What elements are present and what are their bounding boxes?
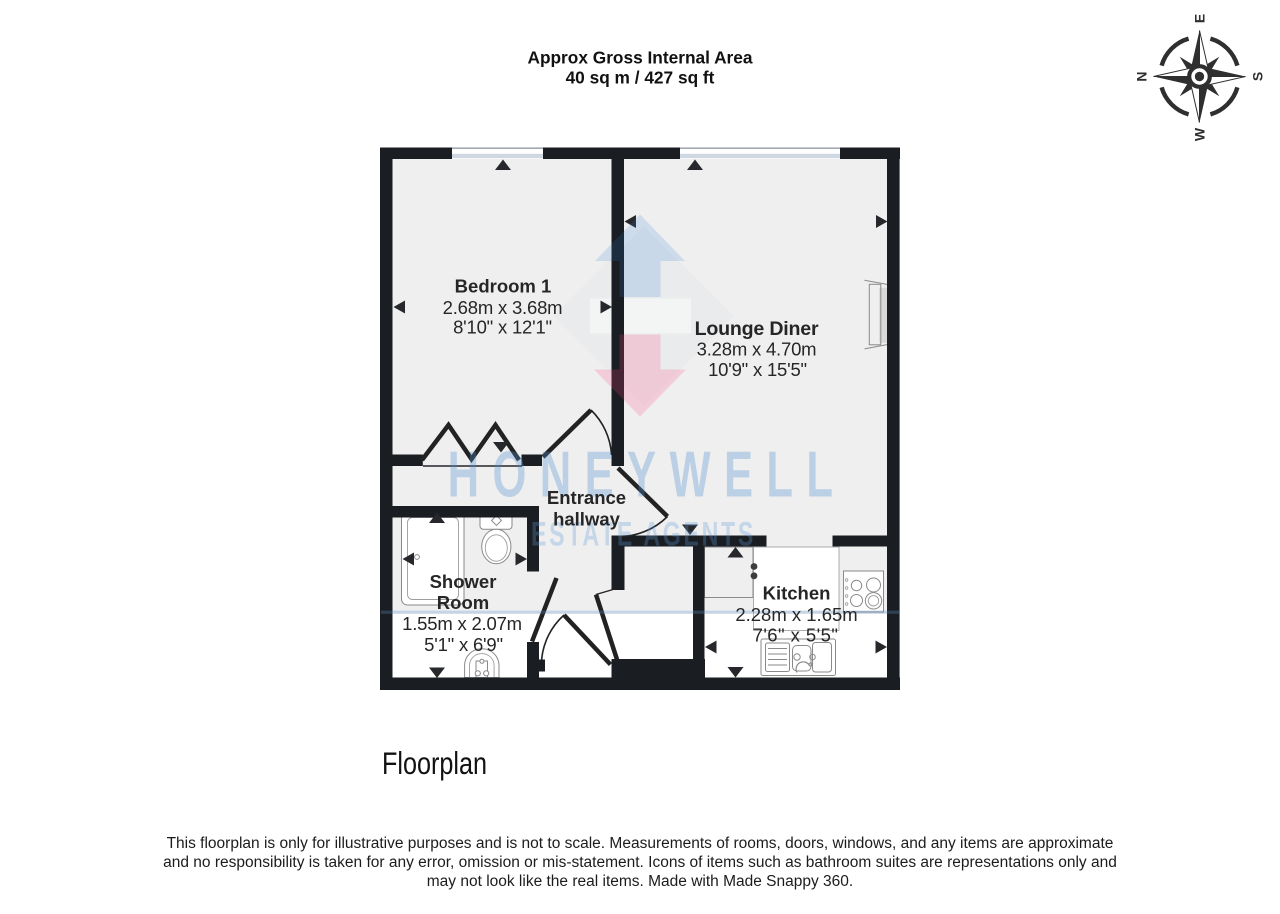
svg-text:E: E — [1192, 14, 1208, 23]
svg-text:W: W — [1192, 127, 1208, 141]
svg-text:Lounge Diner: Lounge Diner — [695, 318, 819, 340]
svg-text:may not look like the real ite: may not look like the real items. Made w… — [427, 873, 853, 890]
svg-text:Entrance: Entrance — [547, 487, 626, 508]
svg-text:Approx Gross Internal Area: Approx Gross Internal Area — [527, 48, 752, 68]
svg-text:1.55m x 2.07m: 1.55m x 2.07m — [402, 613, 522, 634]
svg-text:Room: Room — [437, 592, 489, 613]
svg-text:40 sq m / 427 sq ft: 40 sq m / 427 sq ft — [566, 68, 715, 88]
svg-text:Floorplan: Floorplan — [382, 746, 487, 781]
svg-text:10'9" x 15'5": 10'9" x 15'5" — [708, 359, 807, 380]
svg-text:S: S — [1250, 72, 1266, 81]
svg-text:8'10" x 12'1": 8'10" x 12'1" — [453, 316, 552, 337]
svg-text:Bedroom 1: Bedroom 1 — [455, 275, 552, 296]
svg-text:7'6" x 5'5": 7'6" x 5'5" — [753, 624, 839, 645]
svg-text:2.68m x 3.68m: 2.68m x 3.68m — [443, 297, 563, 318]
svg-text:5'1" x 6'9": 5'1" x 6'9" — [424, 634, 503, 655]
svg-text:This floorplan is only for ill: This floorplan is only for illustrative … — [167, 835, 1114, 852]
svg-text:3.28m x 4.70m: 3.28m x 4.70m — [697, 339, 817, 360]
svg-text:hallway: hallway — [553, 509, 621, 530]
svg-text:2.28m x 1.65m: 2.28m x 1.65m — [735, 604, 857, 625]
svg-text:Shower: Shower — [430, 571, 497, 592]
svg-text:N: N — [1134, 71, 1150, 81]
svg-text:HONEYWELL: HONEYWELL — [448, 438, 847, 511]
svg-text:Kitchen: Kitchen — [763, 583, 831, 604]
svg-text:and no responsibility is taken: and no responsibility is taken for any e… — [163, 854, 1117, 871]
